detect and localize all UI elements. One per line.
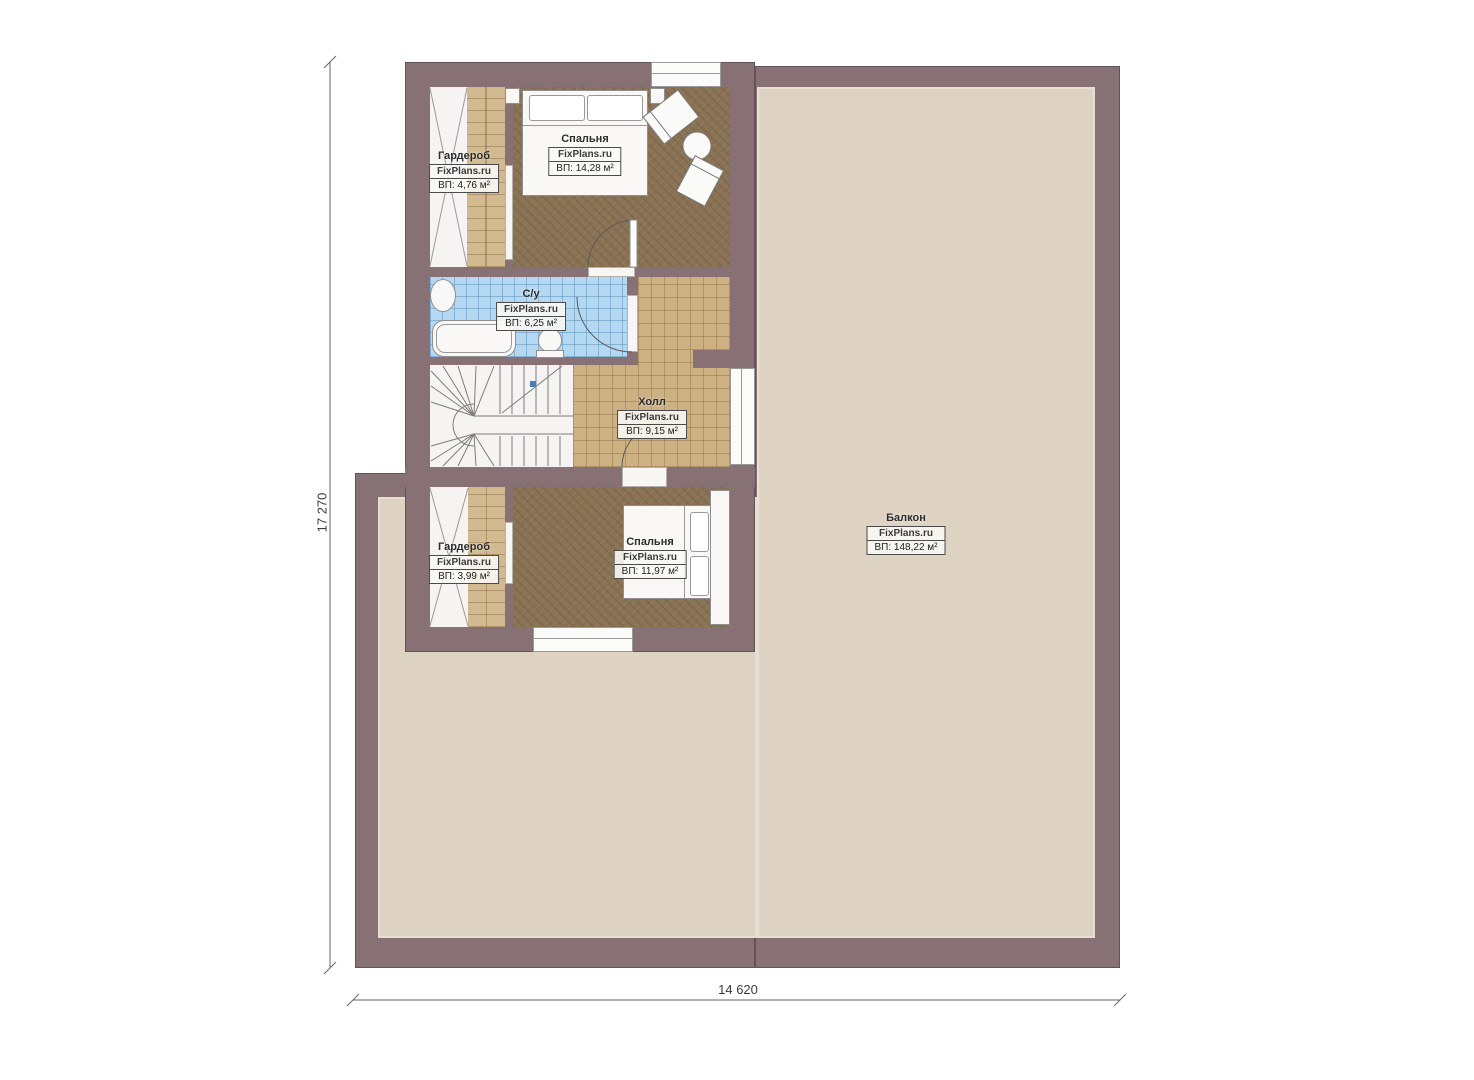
room-label-hall: Холл FixPlans.ru ВП: 9,15 м²: [617, 396, 687, 439]
pillow: [587, 95, 643, 121]
room-name: Спальня: [614, 536, 687, 548]
room-label-bedroom-top: Спальня FixPlans.ru ВП: 14,28 м²: [548, 133, 621, 176]
bedroom-bottom-door-opening: [622, 467, 667, 487]
room-label-wardrobe-top: Гардероб FixPlans.ru ВП: 4,76 м²: [429, 150, 499, 193]
room-name: Спальня: [548, 133, 621, 145]
room-area: ВП: 9,15 м²: [618, 425, 686, 438]
room-label-bedroom-bottom: Спальня FixPlans.ru ВП: 11,97 м²: [614, 536, 687, 579]
bedroom-top-door-opening: [588, 267, 635, 277]
watermark: FixPlans.ru: [430, 556, 498, 570]
room-name: С/у: [496, 288, 566, 300]
room-info-box: FixPlans.ru ВП: 6,25 м²: [496, 302, 566, 331]
bedroom-bottom-window-ledge: [710, 490, 730, 625]
room-name: Холл: [617, 396, 687, 408]
wardrobe-bottom-door-opening: [505, 522, 513, 584]
bedroom-top-window: [651, 62, 721, 87]
toilet-bowl: [538, 328, 562, 352]
room-info-box: FixPlans.ru ВП: 4,76 м²: [429, 164, 499, 193]
room-area: ВП: 14,28 м²: [549, 162, 620, 175]
hall-balcony-door: [730, 368, 755, 465]
bedroom-bottom-balcony-door: [533, 627, 633, 652]
room-info-box: FixPlans.ru ВП: 148,22 м²: [867, 526, 946, 555]
room-area: ВП: 6,25 м²: [497, 317, 565, 330]
wardrobe-top-door-opening: [505, 165, 513, 260]
room-name: Балкон: [867, 512, 946, 524]
watermark: FixPlans.ru: [549, 148, 620, 162]
room-area: ВП: 11,97 м²: [615, 565, 686, 578]
wall-below-bedroom-top: [430, 267, 730, 277]
bathroom-door-leaf: [627, 295, 638, 352]
sink: [430, 279, 456, 312]
room-info-box: FixPlans.ru ВП: 3,99 м²: [429, 555, 499, 584]
dimension-width-label: 14 620: [718, 982, 758, 997]
nightstand-right: [650, 88, 665, 104]
wall-below-bathroom: [430, 357, 638, 365]
hall-wall-pier: [693, 350, 730, 368]
room-area: ВП: 148,22 м²: [868, 541, 945, 554]
nightstand-left: [505, 88, 520, 104]
watermark: FixPlans.ru: [618, 411, 686, 425]
room-label-bathroom: С/у FixPlans.ru ВП: 6,25 м²: [496, 288, 566, 331]
stairs-floor: [430, 365, 573, 467]
watermark: FixPlans.ru: [615, 551, 686, 565]
pillow: [690, 512, 709, 552]
toilet-tank: [536, 350, 564, 358]
room-info-box: FixPlans.ru ВП: 9,15 м²: [617, 410, 687, 439]
watermark: FixPlans.ru: [497, 303, 565, 317]
floor-plan-canvas: Гардероб FixPlans.ru ВП: 4,76 м² Спальня…: [0, 0, 1474, 1080]
watermark: FixPlans.ru: [868, 527, 945, 541]
room-info-box: FixPlans.ru ВП: 11,97 м²: [614, 550, 687, 579]
wall-below-hall: [405, 467, 755, 487]
pillow: [690, 556, 709, 596]
room-name: Гардероб: [429, 541, 499, 553]
room-label-balcony: Балкон FixPlans.ru ВП: 148,22 м²: [867, 512, 946, 555]
room-area: ВП: 3,99 м²: [430, 570, 498, 583]
watermark: FixPlans.ru: [430, 165, 498, 179]
room-area: ВП: 4,76 м²: [430, 179, 498, 192]
room-label-wardrobe-bottom: Гардероб FixPlans.ru ВП: 3,99 м²: [429, 541, 499, 584]
dimension-height-label: 17 270: [314, 493, 329, 533]
room-info-box: FixPlans.ru ВП: 14,28 м²: [548, 147, 621, 176]
blanket-edge: [523, 125, 647, 126]
pillow: [529, 95, 585, 121]
room-name: Гардероб: [429, 150, 499, 162]
